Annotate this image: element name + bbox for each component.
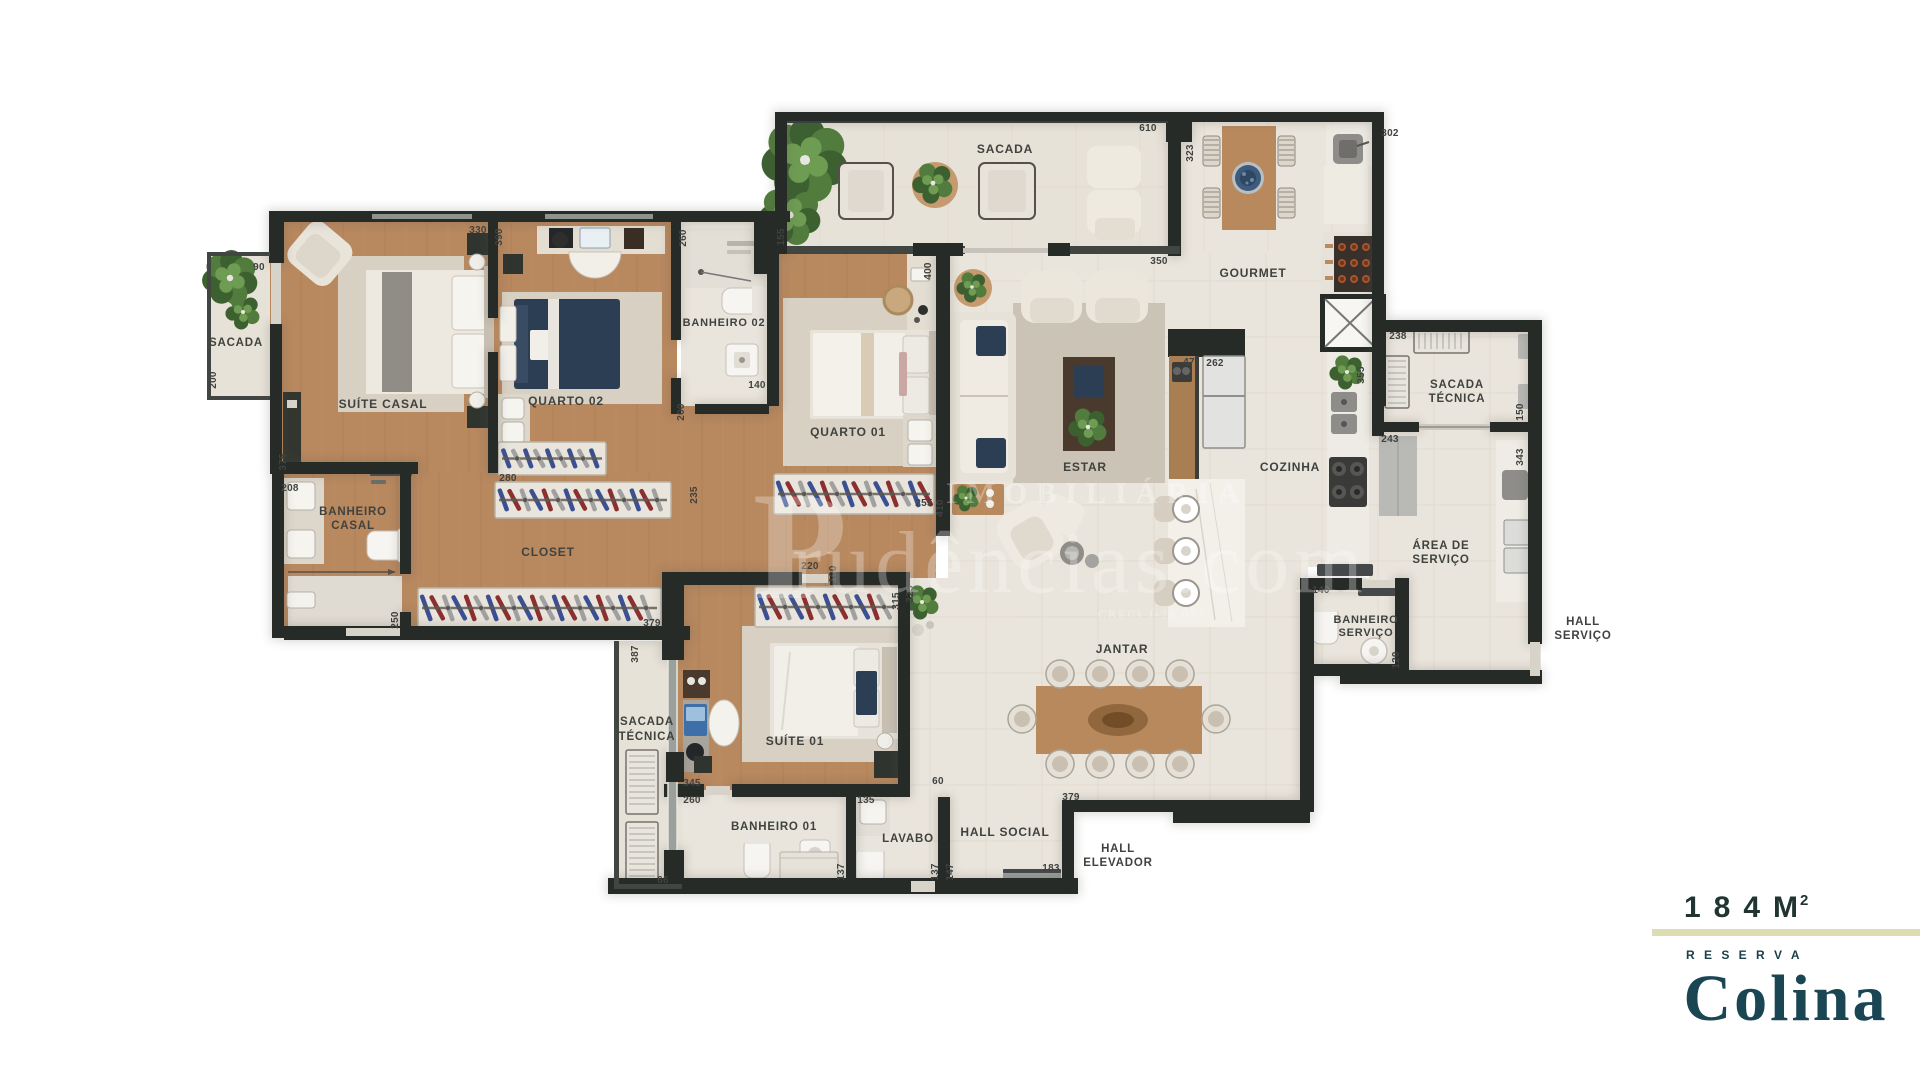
svg-text:200: 200 bbox=[676, 403, 687, 421]
svg-text:COZINHA: COZINHA bbox=[1260, 460, 1320, 474]
svg-text:BANHEIRO: BANHEIRO bbox=[1333, 614, 1398, 626]
svg-text:QUARTO 02: QUARTO 02 bbox=[528, 394, 604, 408]
svg-text:390: 390 bbox=[494, 228, 505, 246]
svg-text:CASAL: CASAL bbox=[331, 520, 375, 532]
svg-text:HALL: HALL bbox=[1101, 843, 1135, 855]
svg-text:147: 147 bbox=[945, 863, 956, 881]
svg-text:60: 60 bbox=[932, 776, 944, 787]
svg-text:184M: 184M bbox=[1684, 891, 1811, 924]
svg-text:TÉCNICA: TÉCNICA bbox=[619, 730, 676, 743]
svg-text:260: 260 bbox=[678, 229, 689, 247]
svg-text:345: 345 bbox=[683, 778, 701, 789]
svg-text:TÉCNICA: TÉCNICA bbox=[1429, 392, 1486, 405]
svg-text:90: 90 bbox=[253, 262, 265, 273]
svg-text:47: 47 bbox=[1183, 357, 1195, 368]
svg-text:ESTAR: ESTAR bbox=[1063, 460, 1107, 474]
svg-text:BANHEIRO: BANHEIRO bbox=[319, 506, 387, 518]
svg-text:ELEVADOR: ELEVADOR bbox=[1083, 857, 1152, 869]
svg-text:SUÍTE CASAL: SUÍTE CASAL bbox=[339, 396, 428, 411]
svg-text:SACADA: SACADA bbox=[1430, 379, 1484, 391]
svg-text:66: 66 bbox=[657, 875, 669, 886]
svg-text:SUÍTE 01: SUÍTE 01 bbox=[766, 733, 824, 748]
svg-text:SERVIÇO: SERVIÇO bbox=[1554, 630, 1611, 642]
svg-text:379: 379 bbox=[643, 618, 661, 629]
svg-text:235: 235 bbox=[689, 486, 700, 504]
svg-text:150: 150 bbox=[1515, 403, 1526, 421]
svg-text:183: 183 bbox=[1042, 863, 1060, 874]
svg-text:SERVIÇO: SERVIÇO bbox=[1339, 627, 1394, 639]
svg-text:CRECI J-24.073: CRECI J-24.073 bbox=[1098, 607, 1206, 621]
svg-text:R E S E R V A: R E S E R V A bbox=[1686, 948, 1803, 962]
svg-text:375: 375 bbox=[278, 453, 289, 471]
svg-text:400: 400 bbox=[923, 262, 934, 280]
svg-text:IMOBILIÁRIA: IMOBILIÁRIA bbox=[946, 477, 1248, 510]
svg-text:CLOSET: CLOSET bbox=[521, 545, 574, 559]
svg-text:243: 243 bbox=[1381, 434, 1399, 445]
svg-text:2: 2 bbox=[1800, 892, 1808, 909]
svg-text:379: 379 bbox=[1062, 792, 1080, 803]
svg-text:355: 355 bbox=[1356, 366, 1367, 384]
svg-text:250: 250 bbox=[390, 611, 401, 629]
svg-text:HALL: HALL bbox=[1566, 616, 1600, 628]
svg-text:ÁREA DE: ÁREA DE bbox=[1413, 539, 1470, 552]
svg-text:GOURMET: GOURMET bbox=[1220, 266, 1287, 280]
svg-text:302: 302 bbox=[1381, 128, 1399, 139]
svg-text:343: 343 bbox=[1515, 448, 1526, 466]
svg-text:323: 323 bbox=[1185, 144, 1196, 162]
svg-text:330: 330 bbox=[469, 225, 487, 236]
svg-text:155: 155 bbox=[776, 228, 787, 246]
svg-text:350: 350 bbox=[1150, 256, 1168, 267]
svg-text:262: 262 bbox=[1206, 358, 1224, 369]
svg-text:280: 280 bbox=[499, 473, 517, 484]
svg-text:SACADA: SACADA bbox=[977, 142, 1033, 156]
svg-text:QUARTO 01: QUARTO 01 bbox=[810, 425, 886, 439]
svg-text:BANHEIRO 01: BANHEIRO 01 bbox=[731, 821, 817, 833]
svg-text:BANHEIRO 02: BANHEIRO 02 bbox=[683, 317, 766, 329]
svg-text:SERVIÇO: SERVIÇO bbox=[1412, 554, 1469, 566]
svg-text:135: 135 bbox=[857, 795, 875, 806]
svg-text:255: 255 bbox=[915, 498, 933, 509]
svg-text:LAVABO: LAVABO bbox=[882, 833, 934, 845]
svg-text:rudências.com: rudências.com bbox=[792, 515, 1368, 612]
svg-text:610: 610 bbox=[1139, 123, 1157, 134]
svg-text:137: 137 bbox=[836, 863, 847, 881]
svg-text:140: 140 bbox=[748, 380, 766, 391]
svg-text:HALL SOCIAL: HALL SOCIAL bbox=[960, 825, 1049, 839]
svg-text:JANTAR: JANTAR bbox=[1096, 642, 1149, 656]
svg-text:137: 137 bbox=[930, 863, 941, 881]
svg-text:SACADA: SACADA bbox=[620, 716, 674, 728]
svg-text:238: 238 bbox=[1389, 331, 1407, 342]
svg-text:SACADA: SACADA bbox=[209, 337, 263, 349]
svg-text:200: 200 bbox=[208, 371, 219, 389]
svg-text:208: 208 bbox=[281, 483, 299, 494]
svg-text:Colina: Colina bbox=[1683, 962, 1888, 1035]
svg-text:120: 120 bbox=[1391, 651, 1402, 669]
svg-text:260: 260 bbox=[683, 795, 701, 806]
svg-text:387: 387 bbox=[630, 645, 641, 663]
